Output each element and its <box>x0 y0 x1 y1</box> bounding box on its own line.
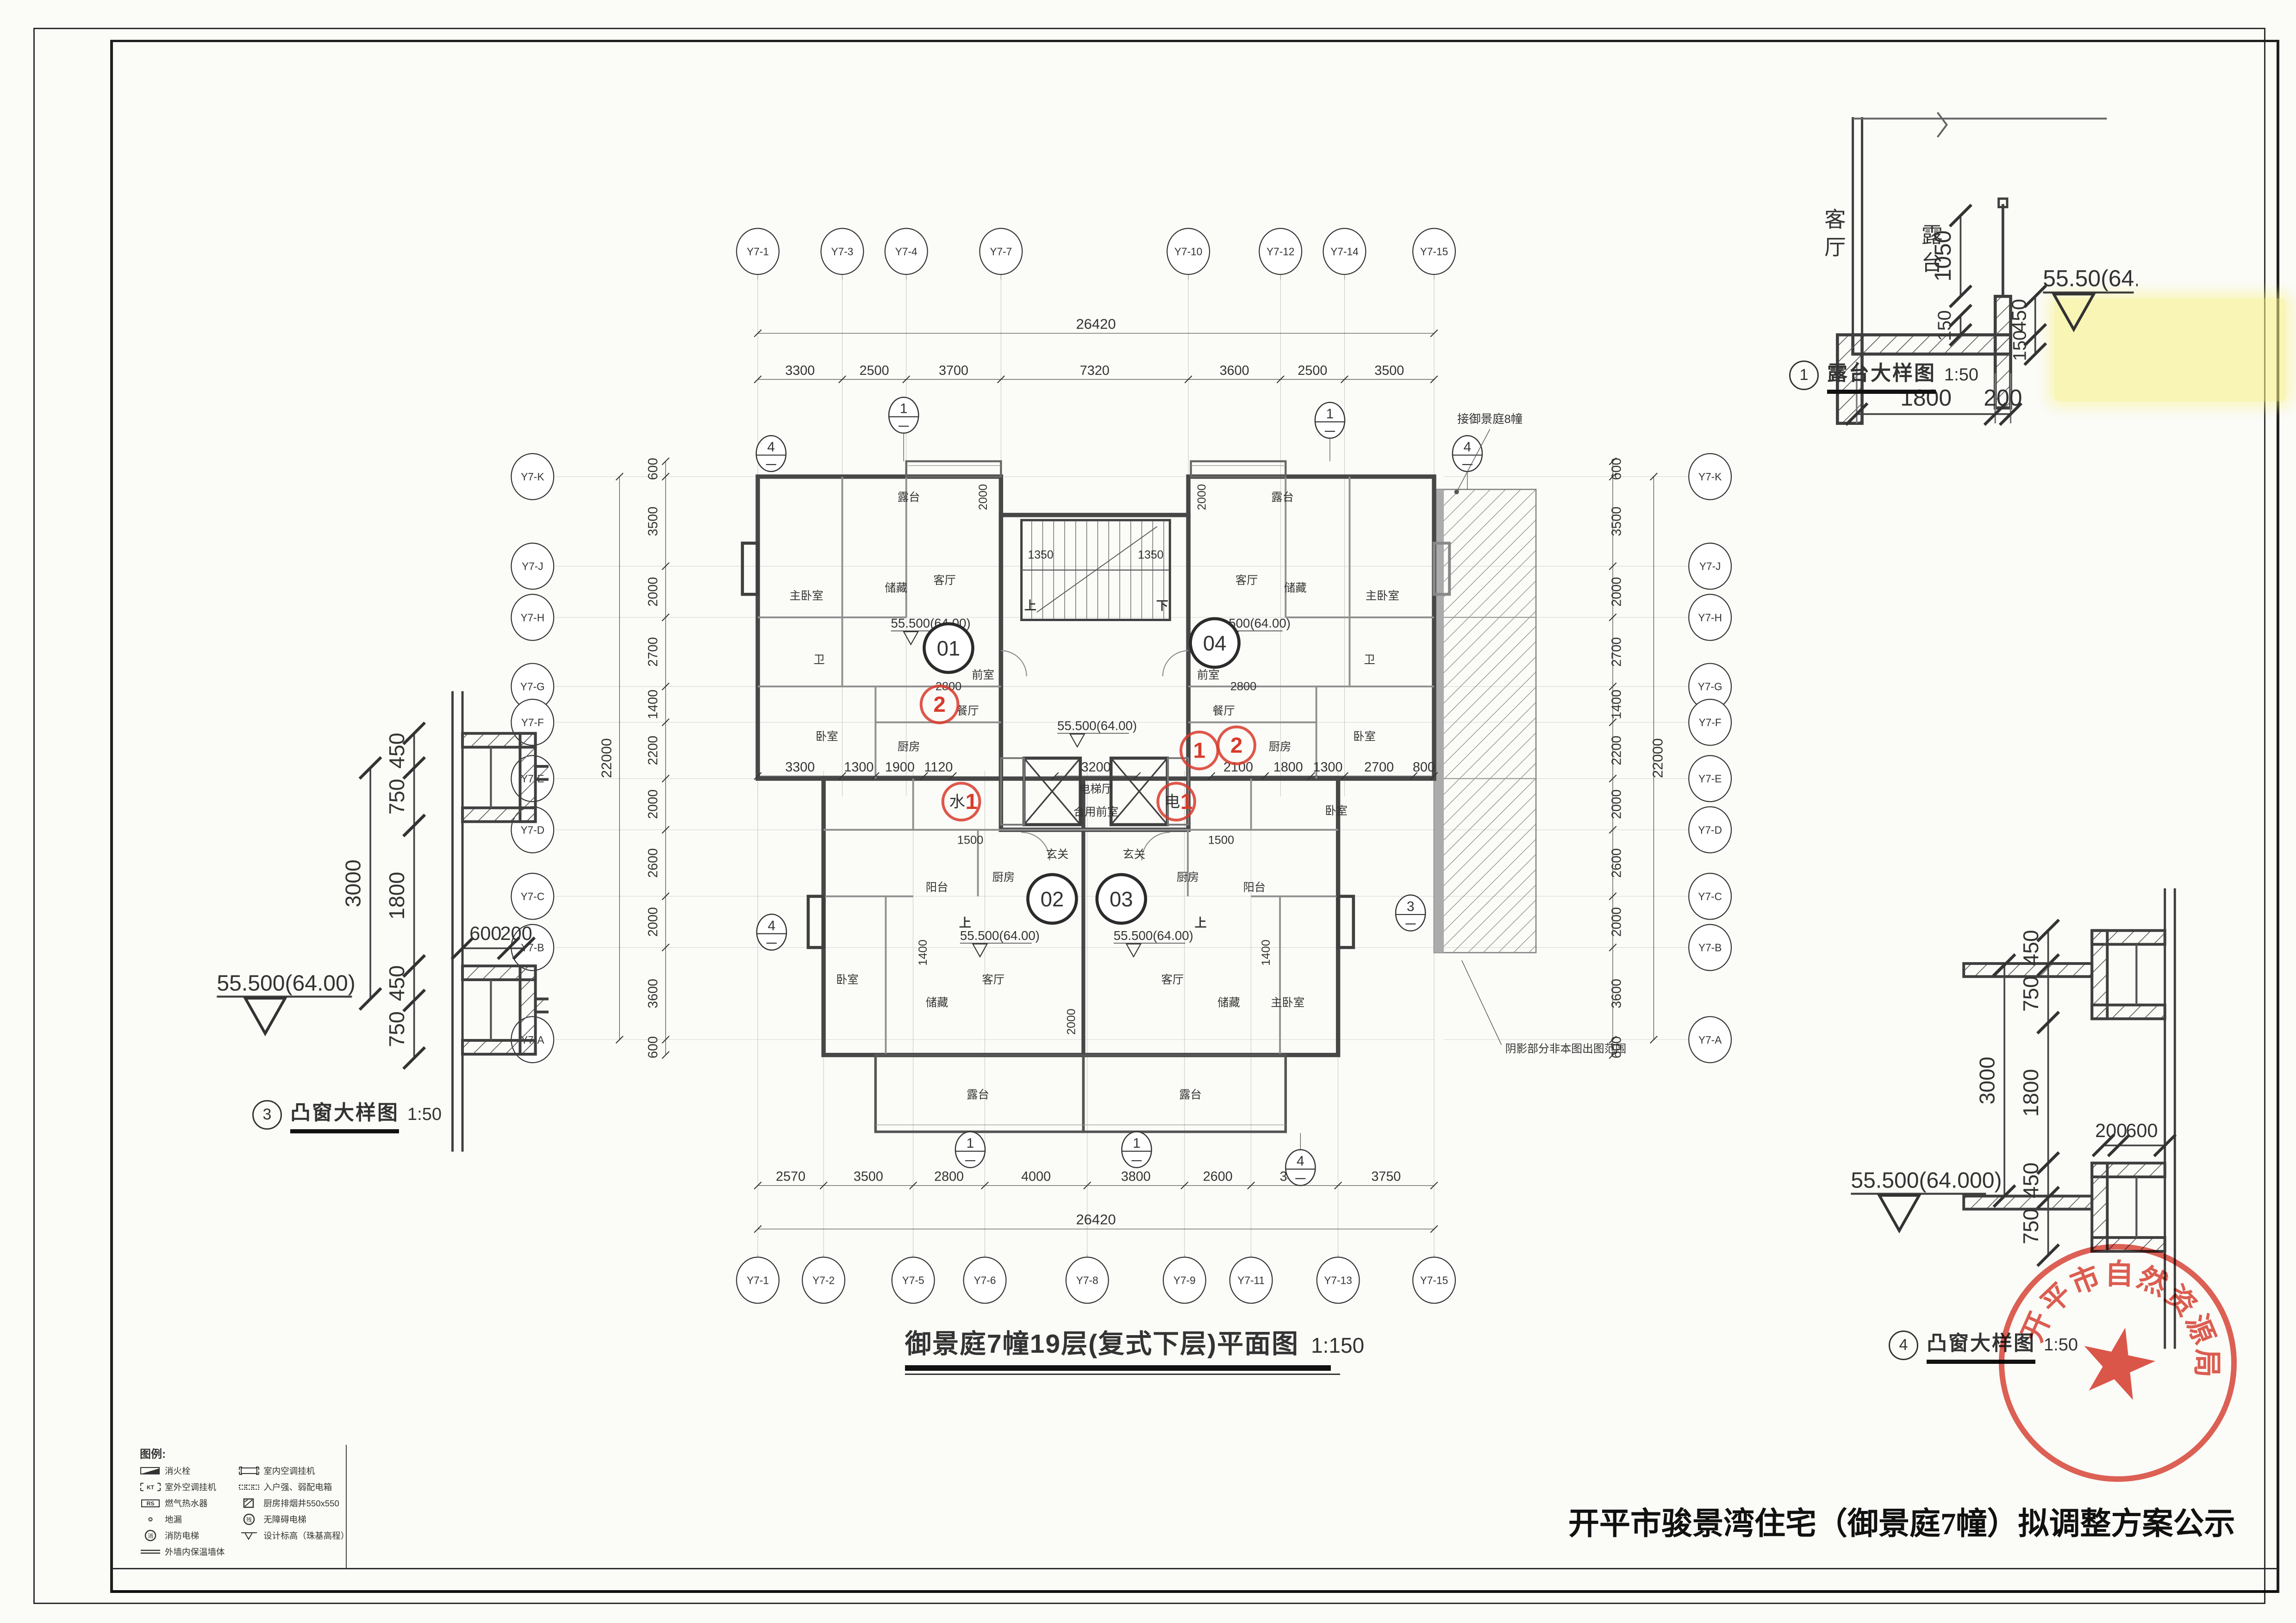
stamp: ★ 开平市自然资源局 <box>1977 1222 2259 1504</box>
svg-text:1: 1 <box>900 401 908 417</box>
svg-text:750: 750 <box>2019 976 2043 1012</box>
svg-text:露台: 露台 <box>1271 491 1294 504</box>
legend-item: 入户强、弱配电箱 <box>238 1481 343 1493</box>
svg-text:Y7-H: Y7-H <box>1698 611 1722 623</box>
svg-text:前室: 前室 <box>1197 669 1220 682</box>
svg-text:01: 01 <box>937 636 960 660</box>
sheet-border-inner-top <box>110 40 2279 42</box>
svg-text:450: 450 <box>2019 930 2043 965</box>
legend-item-label: 外墙内保温墙体 <box>165 1546 225 1558</box>
legend-item-label: 消火栓 <box>165 1465 191 1477</box>
svg-text:卧室: 卧室 <box>1325 805 1348 817</box>
svg-text:800: 800 <box>1413 760 1435 775</box>
legend-item: 消消防电梯 <box>140 1530 237 1542</box>
svg-text:1: 1 <box>966 790 978 814</box>
svg-text:Y7-15: Y7-15 <box>1420 1275 1448 1287</box>
svg-text:Y7-D: Y7-D <box>1698 824 1722 836</box>
svg-text:2000: 2000 <box>977 484 990 510</box>
svg-text:03: 03 <box>1110 887 1133 911</box>
svg-text:2570: 2570 <box>776 1169 805 1184</box>
svg-text:水: 水 <box>949 793 965 811</box>
legend-item-label: 燃气热水器 <box>165 1497 208 1509</box>
svg-text:储藏: 储藏 <box>885 582 907 595</box>
svg-text:卫: 卫 <box>814 654 825 666</box>
svg-text:7320: 7320 <box>1080 363 1110 378</box>
baywindow-detail3-title: 3 凸窗大样图 1:50 <box>252 1096 442 1133</box>
svg-text:1500: 1500 <box>1208 833 1235 846</box>
svg-text:1050: 1050 <box>1930 230 1956 282</box>
svg-text:露台: 露台 <box>1179 1089 1202 1101</box>
svg-text:2800: 2800 <box>934 1169 964 1184</box>
bottom-rule-thick <box>112 1590 2278 1593</box>
svg-text:KT: KT <box>147 1484 155 1491</box>
svg-text:Y7-12: Y7-12 <box>1267 246 1294 258</box>
svg-text:1900: 1900 <box>885 760 915 775</box>
detail-title-text: 露台大样图 <box>1827 356 1936 394</box>
ac-outdoor-icon: KT <box>140 1482 161 1492</box>
svg-text:Y7-3: Y7-3 <box>831 246 854 258</box>
detail-scale: 1:50 <box>407 1105 442 1125</box>
svg-text:3500: 3500 <box>1610 507 1624 536</box>
detail-scale: 1:50 <box>1944 365 1978 385</box>
svg-text:Y7-F: Y7-F <box>1699 716 1722 728</box>
svg-text:450: 450 <box>2009 299 2031 332</box>
floor-plan-svg: 3300250037007320360025003500264202570350… <box>502 208 1782 1321</box>
svg-text:450: 450 <box>385 733 409 768</box>
svg-text:2600: 2600 <box>646 848 661 878</box>
svg-text:55.50(64.00): 55.50(64.00) <box>2043 266 2138 292</box>
svg-text:客厅: 客厅 <box>1161 974 1184 986</box>
svg-text:储藏: 储藏 <box>1217 997 1240 1009</box>
svg-text:Y7-1: Y7-1 <box>747 1275 769 1287</box>
svg-text:150: 150 <box>2010 330 2030 361</box>
plan-title-scale: 1:150 <box>1311 1333 1364 1358</box>
plan-title-underline-thin <box>905 1374 1340 1375</box>
svg-text:4: 4 <box>1464 440 1472 455</box>
detail-title-text: 凸窗大样图 <box>290 1096 399 1133</box>
grid-bubbles: Y7-1Y7-3Y7-4Y7-7Y7-10Y7-12Y7-14Y7-15Y7-1… <box>511 228 1731 1303</box>
svg-text:下: 下 <box>1156 598 1168 612</box>
svg-text:2700: 2700 <box>1364 760 1394 775</box>
svg-text:2000: 2000 <box>646 577 661 607</box>
legend-item: 地漏 <box>140 1513 237 1525</box>
terrace-detail-title: 1 露台大样图 1:50 <box>1789 356 1978 394</box>
svg-text:2600: 2600 <box>1610 848 1624 878</box>
svg-text:前室: 前室 <box>972 669 994 682</box>
svg-text:2800: 2800 <box>1230 680 1257 693</box>
svg-text:阳台: 阳台 <box>926 882 948 894</box>
svg-text:3700: 3700 <box>939 363 968 378</box>
room-labels: 露台露台主卧室主卧室储藏储藏客厅客厅卫卫卧室卧室厨房厨房餐厅餐厅前室前室电梯厅合… <box>790 484 1399 1101</box>
svg-text:450: 450 <box>385 965 409 1001</box>
svg-text:Y7-A: Y7-A <box>1698 1034 1722 1046</box>
svg-text:1: 1 <box>1133 1136 1141 1151</box>
svg-text:玄关: 玄关 <box>1123 848 1146 861</box>
ac-indoor-icon <box>238 1466 260 1476</box>
plan-title-text: 御景庭7幢19层(复式下层)平面图 <box>905 1323 1299 1361</box>
sheet-border-inner-left <box>110 40 113 1593</box>
svg-text:客厅: 客厅 <box>933 574 956 587</box>
svg-text:1400: 1400 <box>1610 690 1624 719</box>
svg-text:Y7-6: Y7-6 <box>974 1275 996 1287</box>
svg-text:残: 残 <box>246 1517 252 1523</box>
bottom-rule-thin <box>112 1568 2278 1569</box>
svg-text:200: 200 <box>1984 385 2022 410</box>
svg-text:卫: 卫 <box>1364 654 1375 666</box>
legend-item: KT室外空调挂机 <box>140 1481 237 1493</box>
svg-text:1400: 1400 <box>646 690 661 719</box>
svg-text:Y7-1: Y7-1 <box>747 246 769 258</box>
legend-item-label: 设计标高（珠基高程） <box>263 1530 349 1542</box>
svg-text:2000: 2000 <box>1610 577 1624 607</box>
svg-text:2: 2 <box>1230 734 1242 758</box>
svg-text:厨房: 厨房 <box>898 741 920 753</box>
svg-text:1800: 1800 <box>1273 760 1303 775</box>
banner-title: 开平市骏景湾住宅（御景庭7幢）拟调整方案公示 <box>1568 1499 2272 1543</box>
svg-text:Y7-10: Y7-10 <box>1174 246 1202 258</box>
svg-text:上: 上 <box>1195 916 1207 930</box>
svg-text:3500: 3500 <box>646 507 661 536</box>
svg-text:2000: 2000 <box>646 790 661 819</box>
svg-text:55.500(64.00): 55.500(64.00) <box>960 928 1040 943</box>
svg-text:上: 上 <box>959 916 971 930</box>
svg-text:1: 1 <box>967 1136 974 1151</box>
legend-item: RS燃气热水器 <box>140 1497 237 1509</box>
svg-text:200: 200 <box>2095 1119 2127 1141</box>
legend-item: 外墙内保温墙体 <box>140 1546 237 1558</box>
svg-text:2000: 2000 <box>1065 1008 1078 1035</box>
svg-text:消: 消 <box>148 1533 153 1539</box>
svg-text:Y7-J: Y7-J <box>522 560 543 572</box>
svg-text:卧室: 卧室 <box>816 730 838 743</box>
svg-text:2200: 2200 <box>646 736 661 765</box>
svg-text:600: 600 <box>469 922 501 944</box>
svg-text:3300: 3300 <box>785 760 815 775</box>
svg-text:2700: 2700 <box>1610 637 1624 667</box>
svg-text:26420: 26420 <box>1076 1212 1116 1228</box>
legend-item-label: 室外空调挂机 <box>165 1481 216 1493</box>
insulated-wall-icon <box>140 1547 161 1557</box>
svg-text:26420: 26420 <box>1076 316 1116 332</box>
svg-text:Y7-J: Y7-J <box>1699 560 1721 572</box>
legend-item: 消火栓 <box>140 1465 237 1477</box>
legend-item-label: 无障碍电梯 <box>263 1513 306 1525</box>
gas-heater-icon: RS <box>140 1498 161 1508</box>
svg-text:上: 上 <box>1024 598 1036 612</box>
svg-text:750: 750 <box>385 779 409 815</box>
svg-text:2000: 2000 <box>1610 790 1624 819</box>
svg-text:厨房: 厨房 <box>992 871 1015 884</box>
svg-text:22000: 22000 <box>1649 738 1666 778</box>
svg-text:1400: 1400 <box>1260 939 1273 966</box>
svg-text:2000: 2000 <box>1196 484 1209 510</box>
svg-text:4: 4 <box>767 440 775 455</box>
svg-text:1350: 1350 <box>1138 548 1163 561</box>
svg-text:4: 4 <box>1297 1154 1304 1169</box>
legend-item: 残无障碍电梯 <box>238 1513 343 1525</box>
svg-text:55.500(64.00): 55.500(64.00) <box>1057 718 1137 733</box>
legend: 图例: 消火栓室内空调挂机KT室外空调挂机入户强、弱配电箱RS燃气热水器厨房排烟… <box>140 1445 342 1558</box>
plan-title: 御景庭7幢19层(复式下层)平面图 1:150 <box>905 1323 1349 1375</box>
svg-text:Y7-2: Y7-2 <box>812 1275 835 1287</box>
svg-text:Y7-11: Y7-11 <box>1237 1275 1265 1287</box>
floor-drain-icon <box>140 1514 161 1524</box>
svg-text:厅: 厅 <box>1824 236 1846 260</box>
detail-number-badge: 4 <box>1889 1331 1918 1360</box>
svg-text:2500: 2500 <box>860 363 889 378</box>
svg-text:餐厅: 餐厅 <box>1212 705 1235 717</box>
exhaust-shaft-icon <box>238 1498 260 1508</box>
svg-text:厨房: 厨房 <box>1177 871 1199 884</box>
svg-text:客厅: 客厅 <box>982 974 1004 986</box>
legend-item: 室内空调挂机 <box>238 1465 343 1477</box>
svg-text:Y7-C: Y7-C <box>1698 890 1722 902</box>
detail-number-badge: 1 <box>1789 361 1819 390</box>
svg-text:2700: 2700 <box>646 637 661 667</box>
svg-text:电梯厅: 电梯厅 <box>1079 783 1113 796</box>
svg-text:Y7-K: Y7-K <box>1698 471 1722 483</box>
hydrant-icon <box>140 1466 161 1476</box>
svg-text:卧室: 卧室 <box>836 974 859 986</box>
svg-text:合用前室: 合用前室 <box>1073 806 1118 819</box>
svg-text:Y7-E: Y7-E <box>1698 773 1722 785</box>
svg-text:Y7-7: Y7-7 <box>990 246 1012 258</box>
svg-text:2000: 2000 <box>1610 907 1624 937</box>
legend-item-label: 室内空调挂机 <box>263 1465 315 1477</box>
svg-text:1300: 1300 <box>1313 760 1343 775</box>
svg-text:储藏: 储藏 <box>1284 582 1307 595</box>
svg-text:1: 1 <box>1193 739 1205 763</box>
power-box-icon <box>238 1482 260 1492</box>
svg-text:150: 150 <box>1934 310 1955 341</box>
svg-text:3800: 3800 <box>1121 1169 1151 1184</box>
legend-grid: 消火栓室内空调挂机KT室外空调挂机入户强、弱配电箱RS燃气热水器厨房排烟井550… <box>140 1465 342 1558</box>
svg-text:Y7-G: Y7-G <box>1698 681 1722 693</box>
legend-item: 厨房排烟井550x550 <box>238 1497 343 1509</box>
svg-text:02: 02 <box>1041 887 1064 911</box>
svg-text:1500: 1500 <box>957 833 984 846</box>
legend-title: 图例: <box>140 1445 342 1461</box>
svg-text:Y7-K: Y7-K <box>521 471 544 483</box>
svg-text:Y7-H: Y7-H <box>521 611 545 623</box>
svg-text:2000: 2000 <box>646 907 661 937</box>
svg-text:Y7-9: Y7-9 <box>1173 1275 1196 1287</box>
legend-item-label: 入户强、弱配电箱 <box>263 1481 332 1493</box>
svg-text:2600: 2600 <box>1203 1169 1233 1184</box>
svg-text:Y7-14: Y7-14 <box>1330 246 1358 258</box>
svg-text:3300: 3300 <box>785 363 815 378</box>
svg-text:1800: 1800 <box>385 872 409 920</box>
svg-text:3500: 3500 <box>1374 363 1404 378</box>
svg-text:2500: 2500 <box>1298 363 1327 378</box>
svg-text:1800: 1800 <box>2019 1069 2043 1117</box>
svg-text:3000: 3000 <box>341 859 365 907</box>
svg-text:玄关: 玄关 <box>1046 848 1069 861</box>
svg-text:4: 4 <box>768 918 776 933</box>
stamp-char: 自 <box>2103 1255 2135 1287</box>
legend-item-label: 厨房排烟井550x550 <box>263 1497 339 1509</box>
svg-text:Y7-4: Y7-4 <box>895 246 917 258</box>
svg-text:3: 3 <box>1407 899 1415 914</box>
svg-text:3600: 3600 <box>1220 363 1249 378</box>
detail-number-badge: 3 <box>252 1100 282 1130</box>
svg-text:3600: 3600 <box>1610 979 1624 1008</box>
svg-text:主卧室: 主卧室 <box>1271 997 1304 1009</box>
svg-text:600: 600 <box>646 1036 661 1058</box>
stamp-char: 局 <box>2193 1347 2226 1379</box>
svg-text:Y7-5: Y7-5 <box>902 1275 924 1287</box>
svg-text:55.500(64.00): 55.500(64.00) <box>217 970 355 995</box>
svg-text:Y7-13: Y7-13 <box>1324 1275 1352 1287</box>
svg-text:450: 450 <box>2019 1163 2043 1198</box>
svg-text:04: 04 <box>1203 631 1226 655</box>
svg-text:Y7-B: Y7-B <box>1698 942 1722 954</box>
svg-text:1350: 1350 <box>1028 548 1053 561</box>
elevator-fire-icon: 消 <box>140 1530 161 1542</box>
svg-text:2: 2 <box>933 692 945 717</box>
svg-text:阳台: 阳台 <box>1243 882 1266 894</box>
svg-text:卧室: 卧室 <box>1353 730 1376 743</box>
svg-text:55.500(64.000): 55.500(64.000) <box>1851 1168 2002 1193</box>
svg-text:餐厅: 餐厅 <box>956 705 979 717</box>
svg-text:600: 600 <box>2126 1119 2158 1141</box>
legend-item-label: 消防电梯 <box>165 1530 199 1542</box>
svg-text:客厅: 客厅 <box>1235 574 1258 587</box>
legend-item-label: 地漏 <box>165 1513 182 1525</box>
svg-text:1300: 1300 <box>844 760 873 775</box>
svg-text:露台: 露台 <box>898 491 920 504</box>
svg-text:600: 600 <box>1610 458 1624 480</box>
svg-text:1120: 1120 <box>924 760 953 775</box>
svg-text:200: 200 <box>500 922 532 944</box>
svg-text:储藏: 储藏 <box>926 997 948 1009</box>
drawing-sheet: 3300250037007320360025003500264202570350… <box>0 0 2296 1623</box>
svg-text:露台: 露台 <box>967 1089 989 1101</box>
svg-text:55.500(64.00): 55.500(64.00) <box>1114 928 1193 943</box>
svg-text:主卧室: 主卧室 <box>1366 590 1399 602</box>
elevation-mark-icon <box>238 1530 260 1541</box>
svg-text:1: 1 <box>1326 406 1334 422</box>
elevator-accessible-icon: 残 <box>238 1513 260 1525</box>
svg-text:3500: 3500 <box>854 1169 883 1184</box>
legend-divider-line <box>346 1445 347 1569</box>
svg-text:3600: 3600 <box>646 979 661 1008</box>
svg-text:RS: RS <box>147 1500 155 1507</box>
svg-text:2200: 2200 <box>1610 736 1624 765</box>
svg-text:电: 电 <box>1164 793 1180 811</box>
svg-text:750: 750 <box>385 1011 409 1047</box>
svg-text:3200: 3200 <box>1081 760 1111 775</box>
svg-text:Y7-8: Y7-8 <box>1076 1275 1098 1287</box>
svg-text:Y7-15: Y7-15 <box>1420 246 1448 258</box>
sheet-border-inner-right <box>2277 40 2279 1593</box>
svg-text:3750: 3750 <box>1371 1169 1401 1184</box>
svg-text:1400: 1400 <box>917 939 930 966</box>
svg-text:22000: 22000 <box>599 738 615 778</box>
svg-text:600: 600 <box>646 458 661 480</box>
svg-text:客: 客 <box>1824 208 1846 232</box>
svg-text:厨房: 厨房 <box>1269 741 1291 753</box>
svg-text:3000: 3000 <box>1975 1057 1999 1104</box>
svg-text:主卧室: 主卧室 <box>790 590 824 602</box>
stair-core <box>1022 520 1170 620</box>
plan-title-underline-thick <box>905 1365 1331 1371</box>
legend-item: 设计标高（珠基高程） <box>238 1530 343 1542</box>
svg-text:4000: 4000 <box>1021 1169 1051 1184</box>
svg-text:阴影部分非本图出图范围: 阴影部分非本图出图范围 <box>1505 1043 1626 1055</box>
terraces <box>742 461 1449 1132</box>
svg-text:1: 1 <box>1180 790 1192 814</box>
svg-text:接御景庭8幢: 接御景庭8幢 <box>1457 413 1522 426</box>
